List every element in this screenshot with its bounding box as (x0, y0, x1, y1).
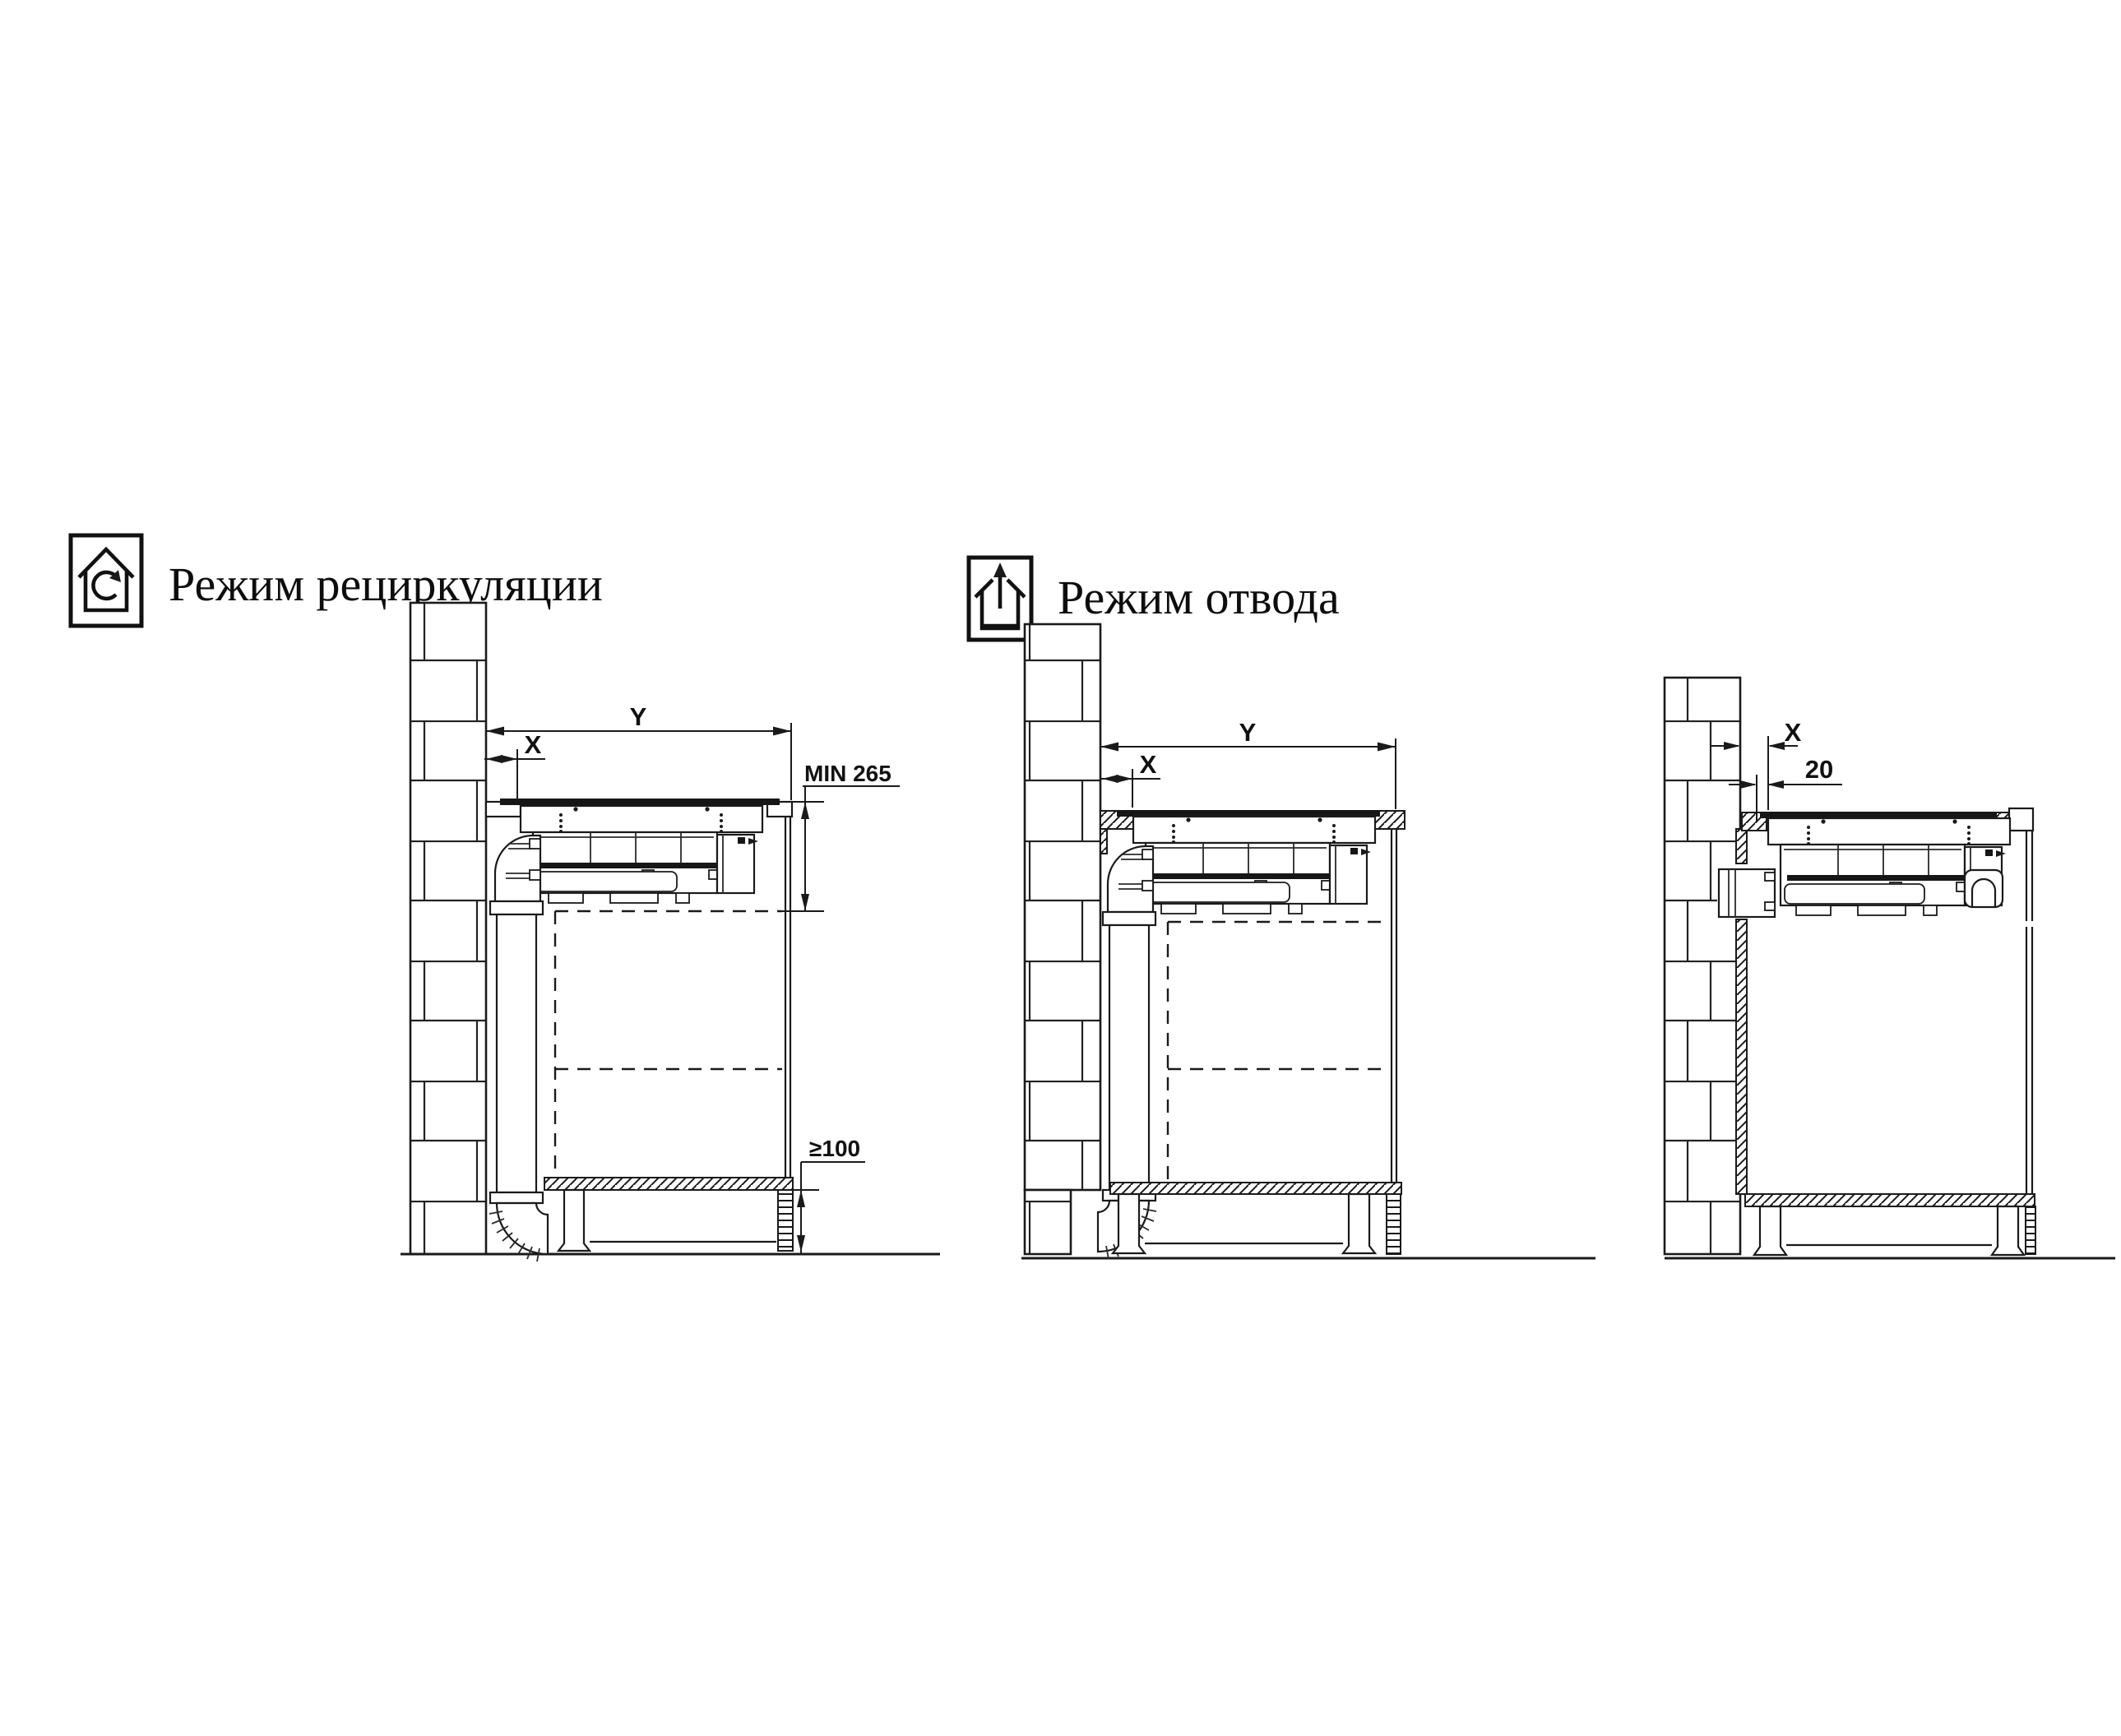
downdraft-hood-unit (521, 806, 762, 903)
mode-label-exhaust: Режим отвода (1058, 571, 1340, 624)
hob-surface (1760, 812, 1997, 818)
brick-wall (1025, 624, 1100, 1190)
dim-label-x: X (1140, 750, 1157, 779)
dimension-x: X (484, 730, 545, 800)
dimension-x: X (1100, 750, 1160, 808)
worktop-overhang (2009, 808, 2033, 831)
rear-duct-through-wall (1719, 869, 1775, 917)
hob-surface (500, 799, 780, 805)
wall-cut-above-duct (1736, 829, 1747, 863)
mode-legend-recirculation: Режим рециркуляции (71, 535, 603, 626)
brick-wall (410, 603, 486, 1254)
dim-label-x: X (525, 730, 542, 759)
recirculation-duct (489, 901, 548, 1261)
diagram-exhaust-bottom: Y X (1021, 624, 1595, 1259)
duct-elbow-top (495, 836, 540, 901)
hob-surface (1117, 810, 1380, 817)
diagram-exhaust-rear: X 20 (1665, 678, 2115, 1258)
duct-elbow-top (1108, 846, 1153, 912)
wall-strip (1100, 829, 1107, 854)
installation-diagram-svg: Режим рециркуляции Режим отвода (0, 0, 2121, 1736)
dimension-min-265: MIN 265 (781, 761, 900, 911)
dim-label-y: Y (1239, 718, 1257, 747)
diagram-recirculation: Y X MIN 265 ≥100 (401, 603, 940, 1261)
brick-wall-stub (1025, 1190, 1071, 1254)
wall-cut-below-duct (1736, 919, 1747, 1194)
dimension-plinth-clearance: ≥100 (791, 1136, 865, 1253)
brick-wall (1665, 678, 1740, 1254)
mode-label-recirculation: Режим рециркуляции (169, 558, 603, 611)
technical-drawing-page: Режим рециркуляции Режим отвода (0, 0, 2121, 1736)
dim-label-clearance-100: ≥100 (809, 1136, 860, 1161)
dim-label-y: Y (630, 702, 647, 731)
blower-outlet (1965, 870, 2003, 907)
downdraft-hood-unit (1133, 817, 1375, 914)
dim-label-x: X (1785, 718, 1802, 747)
dim-label-min-265: MIN 265 (804, 761, 891, 786)
dim-label-20: 20 (1805, 755, 1833, 784)
